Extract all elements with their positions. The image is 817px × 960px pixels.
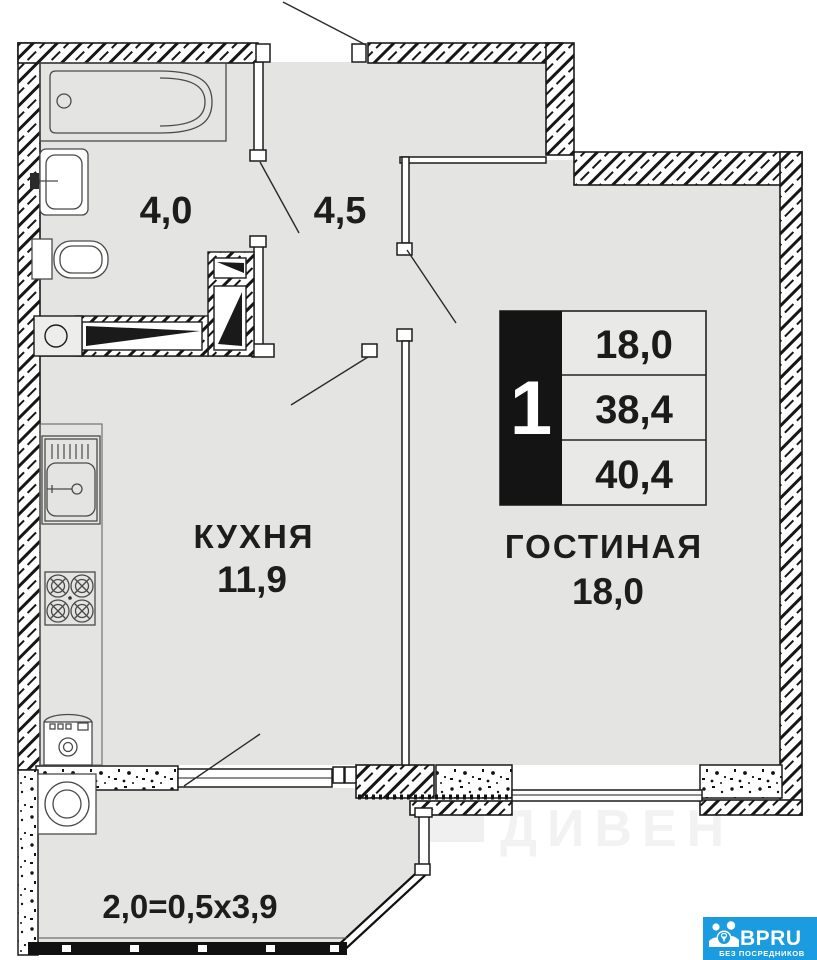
wall-pier-speckle-2 (700, 765, 782, 798)
jamb (362, 344, 377, 357)
rooms-count: 1 (510, 366, 552, 451)
wall-kitchen-living (402, 341, 409, 765)
oven-icon (44, 715, 92, 766)
wall-sill-bottom-right (700, 800, 802, 815)
living-name-label: ГОСТИНАЯ (505, 528, 703, 565)
floor-plan-drawing: ДИВЕН (0, 0, 817, 960)
washing-machine-icon (38, 774, 96, 834)
wall-pier-bottom (356, 765, 434, 798)
area-value: 38,4 (595, 388, 674, 432)
jamb (345, 767, 356, 783)
living-area-label: 18,0 (572, 571, 644, 612)
jamb (252, 344, 274, 357)
toilet-icon (32, 239, 108, 279)
unit-info-box: 1 18,0 38,4 40,4 (500, 311, 706, 505)
tap (30, 173, 39, 189)
kitchen-name-label: КУХНЯ (193, 518, 314, 555)
jamb (250, 150, 266, 161)
wall-right (780, 152, 802, 815)
jamb (415, 864, 430, 875)
jamb (397, 329, 412, 341)
wall-top-right (368, 43, 562, 63)
jamb (256, 44, 270, 62)
wall-top-left (18, 43, 258, 63)
brand-tagline: БЕЗ ПОСРЕДНИКОВ (719, 949, 805, 958)
watermark-text: ДИВЕН (500, 800, 734, 858)
wall-bathroom-right-upper (254, 62, 263, 157)
wall-step-top (574, 152, 802, 185)
jamb (333, 767, 344, 783)
bathroom-area-label: 4,0 (140, 190, 193, 232)
wall-pier-speckle-1 (436, 765, 512, 798)
wall-hall-right (546, 43, 574, 155)
balcony-bottom-band (28, 942, 347, 955)
total-area-value: 40,4 (595, 453, 674, 497)
wall-bathroom-right-lower (254, 242, 263, 350)
floor-plan-page: ДИВЕН (0, 0, 817, 960)
entrance-door-swing (283, 2, 366, 45)
jamb (250, 236, 266, 247)
wall-balcony-left (18, 770, 38, 955)
hallway-area-label: 4,5 (314, 190, 367, 232)
kitchen-area-label: 11,9 (217, 559, 287, 600)
jamb (352, 44, 366, 62)
wall-left (18, 43, 40, 770)
wall-hall-living-top (400, 157, 546, 163)
living-area-value: 18,0 (595, 323, 673, 367)
jamb (415, 808, 432, 817)
bpru-logo: BPRU БЕЗ ПОСРЕДНИКОВ (703, 917, 817, 960)
brand-name: BPRU (740, 927, 802, 950)
pipe-box (34, 316, 82, 356)
balcony-formula-label: 2,0=0,5x3,9 (102, 888, 277, 925)
wall-hall-living-vert (402, 157, 409, 243)
